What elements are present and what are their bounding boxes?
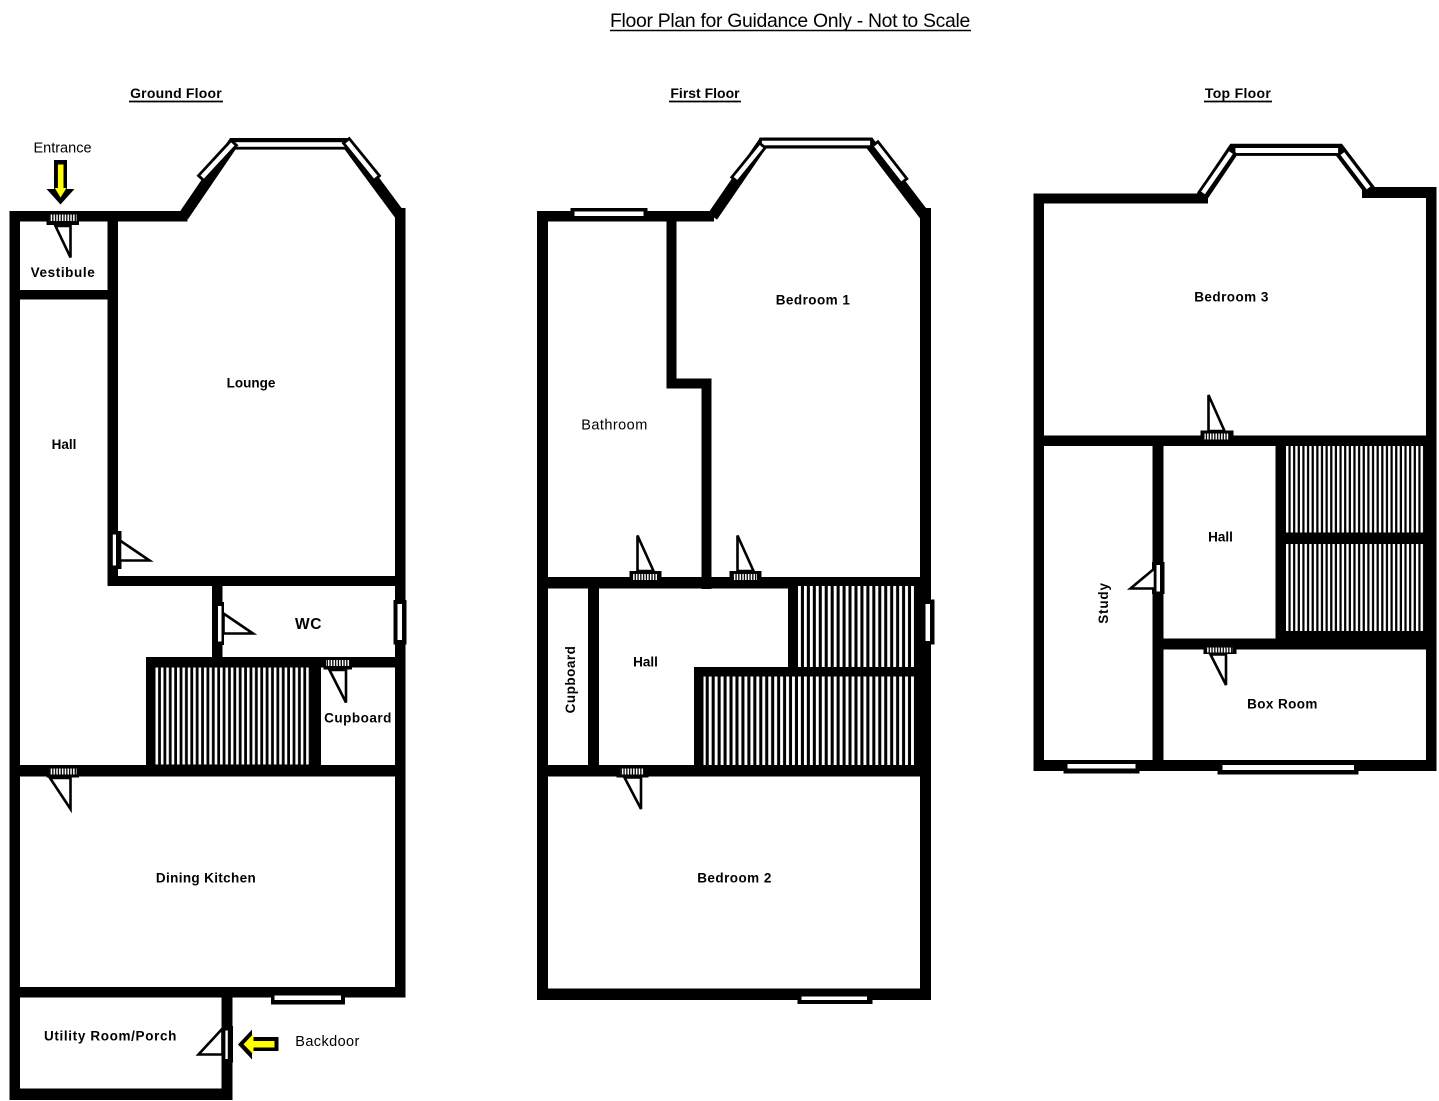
- svg-text:Study: Study: [1096, 582, 1111, 624]
- svg-text:Cupboard: Cupboard: [324, 711, 392, 726]
- svg-text:Bathroom: Bathroom: [581, 418, 647, 434]
- svg-text:Top Floor: Top Floor: [1205, 85, 1271, 101]
- svg-text:Box Room: Box Room: [1247, 697, 1318, 712]
- svg-text:Lounge: Lounge: [227, 376, 276, 391]
- svg-text:Cupboard: Cupboard: [563, 646, 578, 714]
- svg-text:Entrance: Entrance: [33, 140, 91, 156]
- svg-text:First Floor: First Floor: [670, 85, 740, 101]
- svg-text:WC: WC: [295, 616, 322, 633]
- svg-text:Hall: Hall: [633, 655, 658, 670]
- svg-text:Backdoor: Backdoor: [295, 1034, 359, 1050]
- svg-text:Ground Floor: Ground Floor: [130, 85, 222, 101]
- svg-text:Hall: Hall: [1208, 530, 1233, 545]
- svg-text:Bedroom 2: Bedroom 2: [697, 871, 772, 886]
- svg-text:Hall: Hall: [52, 437, 77, 452]
- svg-text:Vestibule: Vestibule: [31, 265, 96, 280]
- svg-text:Floor Plan for Guidance Only -: Floor Plan for Guidance Only - Not to Sc…: [610, 10, 970, 32]
- svg-text:Dining Kitchen: Dining Kitchen: [156, 871, 256, 886]
- svg-text:Bedroom 3: Bedroom 3: [1194, 290, 1269, 305]
- svg-text:Utility Room/Porch: Utility Room/Porch: [44, 1029, 177, 1044]
- svg-text:Bedroom 1: Bedroom 1: [776, 293, 851, 308]
